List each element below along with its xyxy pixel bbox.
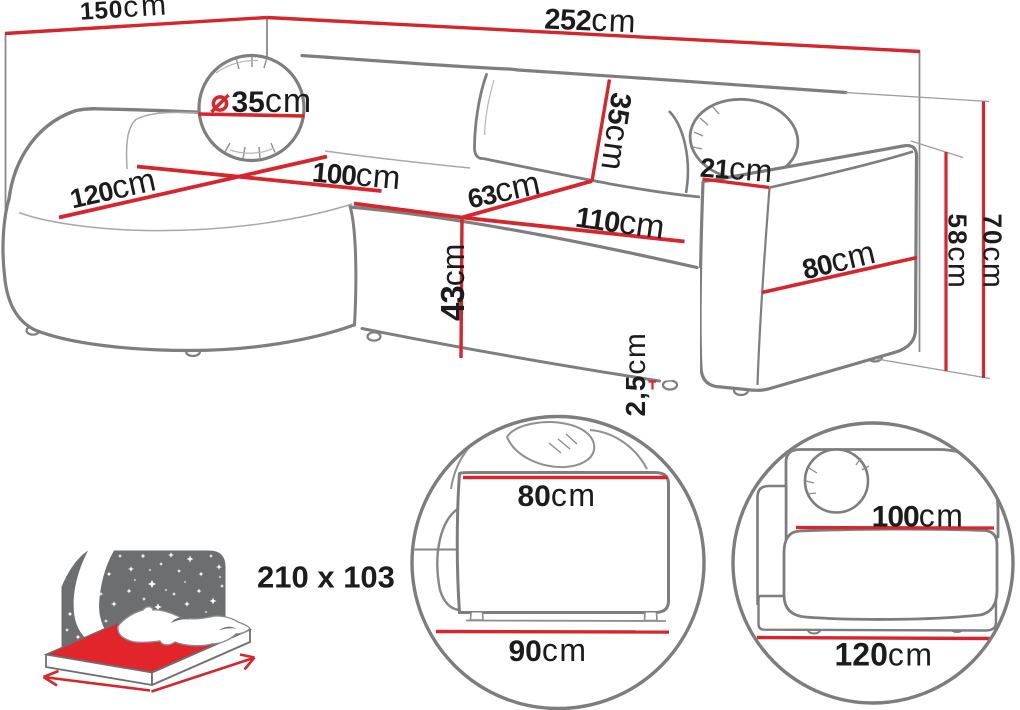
- svg-text:2,5cm: 2,5cm: [619, 332, 652, 417]
- svg-text:210 x 103: 210 x 103: [257, 560, 395, 595]
- svg-text:35cm: 35cm: [232, 82, 313, 120]
- svg-text:90cm: 90cm: [508, 632, 587, 668]
- svg-text:120cm: 120cm: [834, 637, 933, 673]
- svg-text:70cm: 70cm: [977, 214, 1010, 290]
- svg-text:58cm: 58cm: [942, 214, 975, 290]
- svg-text:80cm: 80cm: [517, 477, 596, 513]
- svg-text:110cm: 110cm: [573, 197, 667, 247]
- svg-text:100cm: 100cm: [872, 498, 965, 534]
- svg-text:252cm: 252cm: [544, 0, 638, 40]
- svg-text:43cm: 43cm: [434, 244, 471, 321]
- svg-text:21cm: 21cm: [699, 148, 774, 190]
